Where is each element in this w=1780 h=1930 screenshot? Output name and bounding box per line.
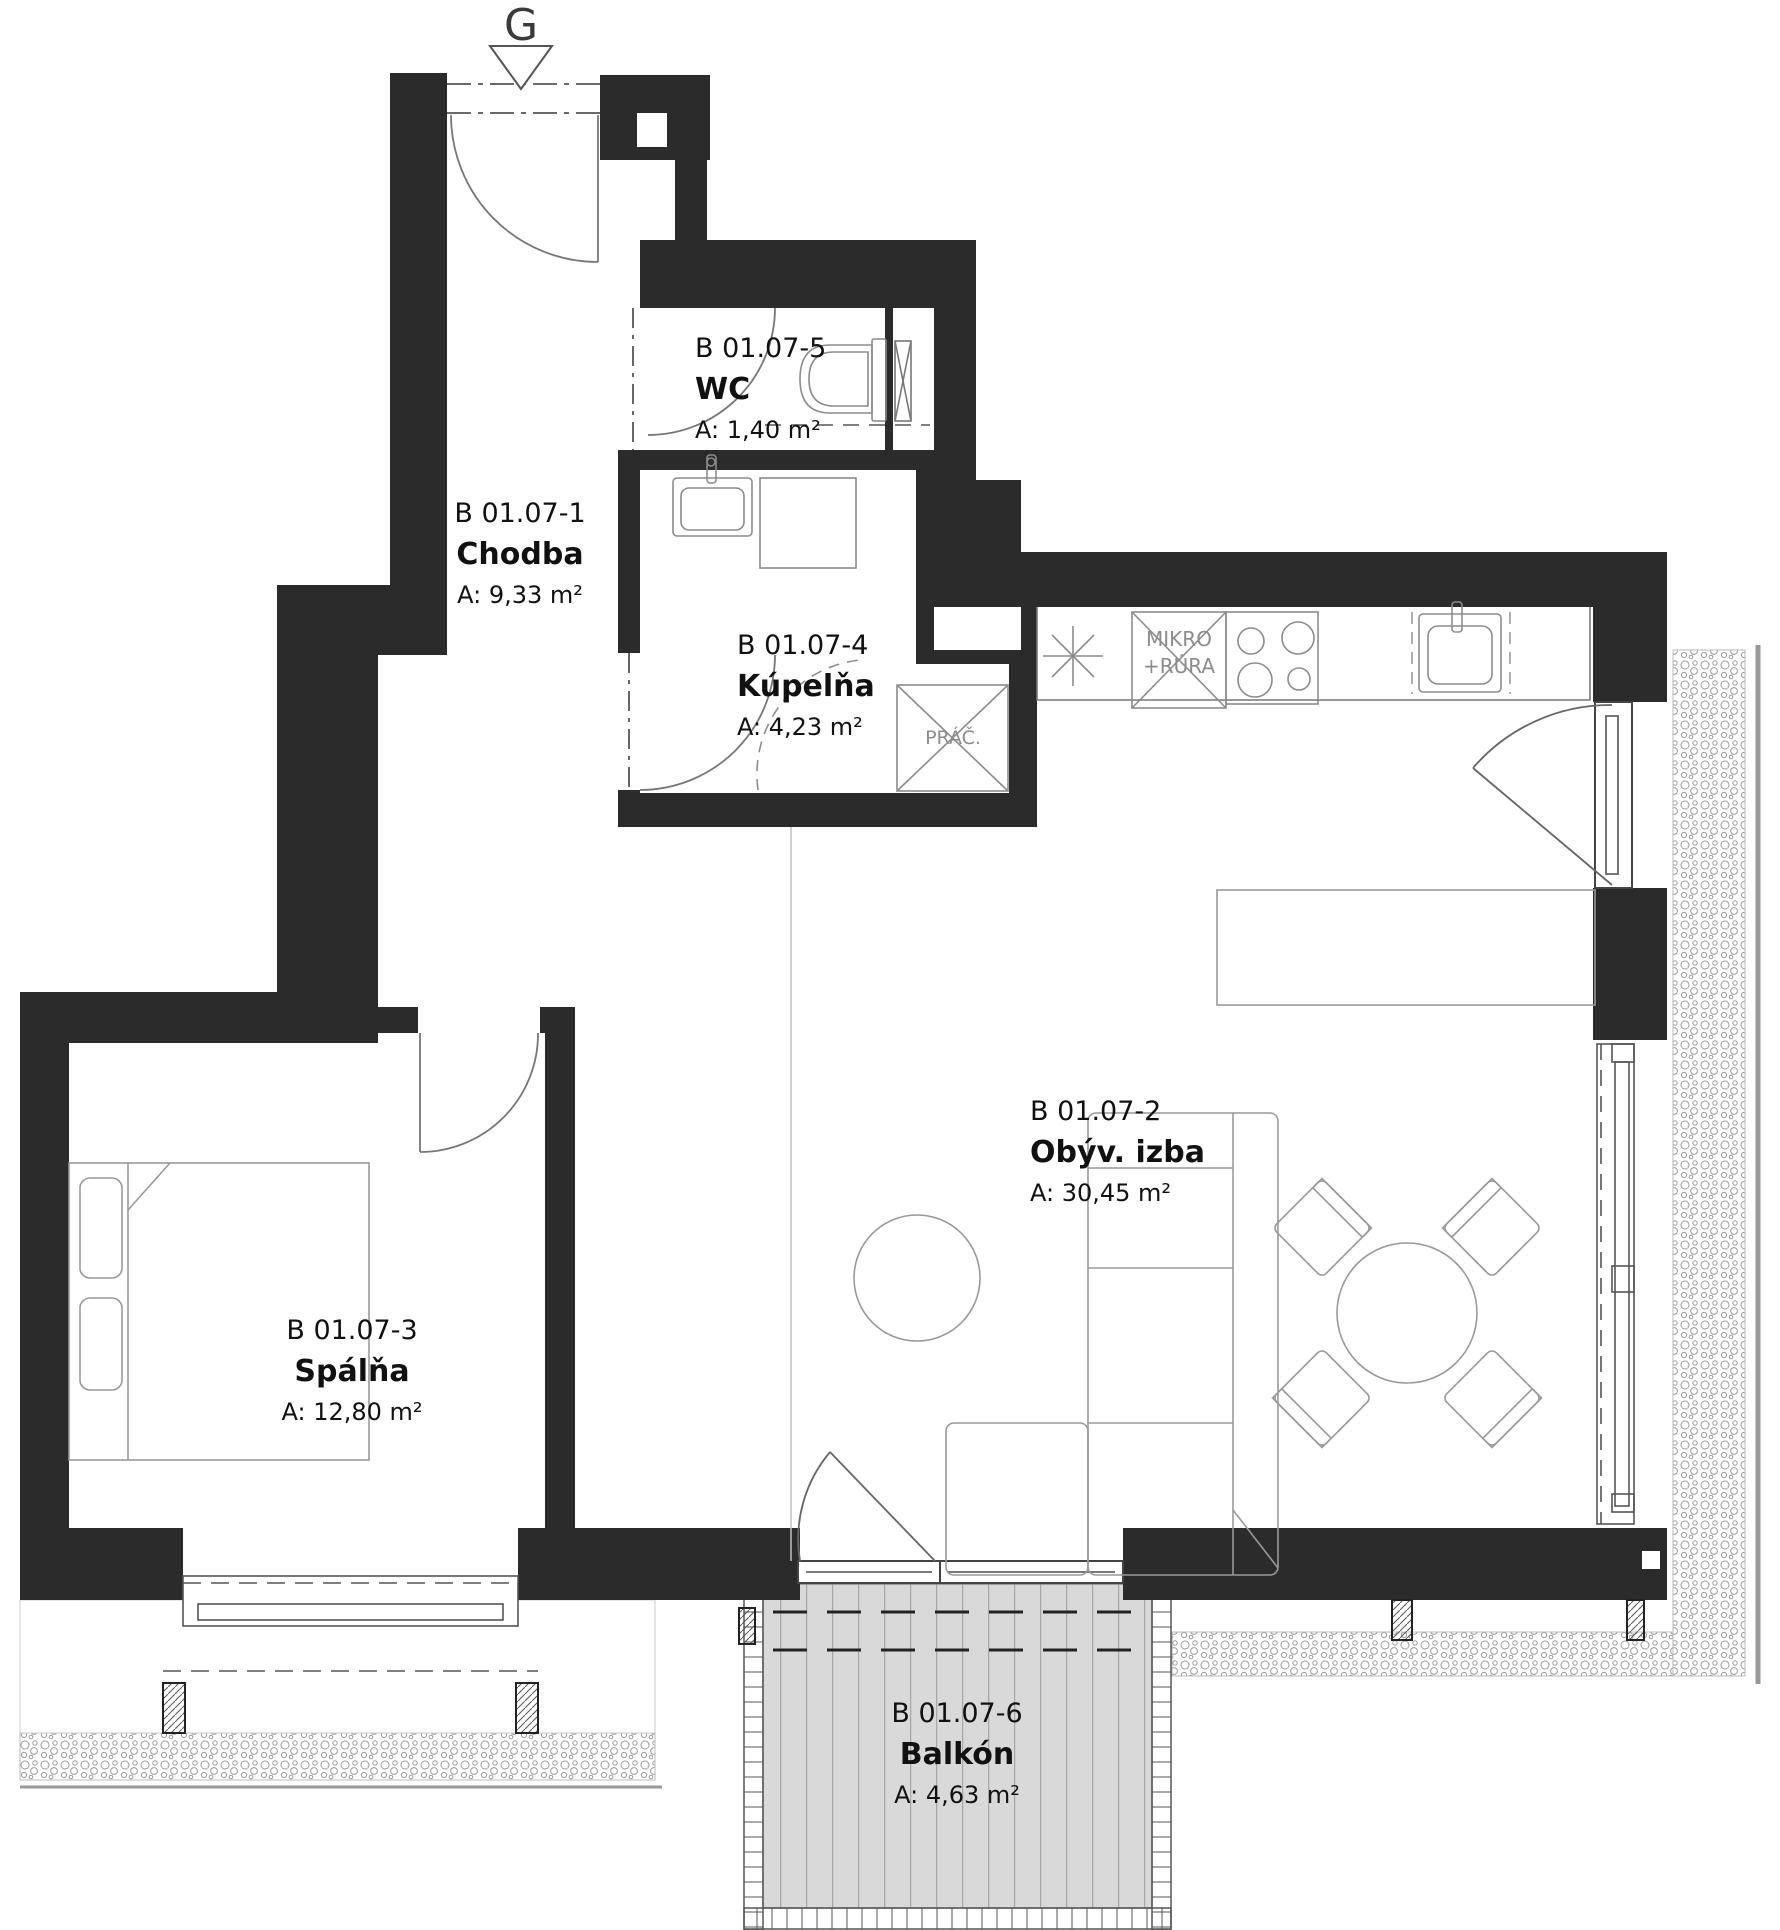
ventilation-shaft [895, 341, 911, 421]
sideboard [1217, 890, 1595, 1005]
room-label-spalna: B 01.07-3 Spálňa A: 12,80 m² [281, 1315, 422, 1426]
room-id: B 01.07-3 [281, 1315, 422, 1346]
room-area: A: 12,80 m² [281, 1399, 422, 1427]
room-name: Spálňa [281, 1355, 422, 1390]
room-area: A: 30,45 m² [1030, 1180, 1205, 1208]
kitchen-star-symbol [1043, 626, 1103, 686]
room-label-balkon: B 01.07-6 Balkón A: 4,63 m² [891, 1698, 1022, 1809]
room-name: Balkón [891, 1738, 1022, 1773]
kitchen-sink [1419, 602, 1501, 692]
room-id: B 01.07-5 [695, 333, 826, 364]
room-id: B 01.07-4 [737, 630, 875, 661]
bathroom-cabinet [760, 478, 856, 568]
entrance-marker-triangle [490, 46, 552, 89]
room-label-kupelna: B 01.07-4 Kúpelňa A: 4,23 m² [737, 630, 875, 741]
kitchen-counter [1037, 602, 1590, 708]
room-area: A: 1,40 m² [695, 417, 826, 445]
room-label-obyv-izba: B 01.07-2 Obýv. izba A: 30,45 m² [1030, 1096, 1205, 1207]
room-name: Obýv. izba [1030, 1136, 1205, 1171]
washer-label: PRÁČ. [925, 726, 981, 752]
room-area: A: 4,63 m² [891, 1782, 1022, 1810]
room-label-wc: B 01.07-5 WC A: 1,40 m² [695, 333, 826, 444]
floor-plan-canvas: G B 01.07-1 Chodba A: 9,33 m² B 01.07-2 … [0, 0, 1780, 1930]
micro-label-line1: MIKRO [1143, 626, 1215, 653]
room-area: A: 4,23 m² [737, 714, 875, 742]
floor-plan-drawing [0, 0, 1780, 1930]
cooktop [1226, 612, 1318, 704]
room-name: Kúpelňa [737, 670, 875, 705]
room-id: B 01.07-1 [454, 498, 585, 529]
room-name: Chodba [454, 538, 585, 573]
dining-set [1273, 1179, 1542, 1448]
room-area: A: 9,33 m² [454, 582, 585, 610]
dining-table [1337, 1243, 1477, 1383]
micro-label-line2: +RÚRA [1143, 653, 1215, 680]
walls [20, 73, 1667, 1600]
entrance-marker-label: G [504, 0, 538, 51]
room-label-chodba: B 01.07-1 Chodba A: 9,33 m² [454, 498, 585, 609]
coffee-table [854, 1215, 980, 1341]
room-id: B 01.07-6 [891, 1698, 1022, 1729]
room-name: WC [695, 373, 826, 408]
microwave-oven-label: MIKRO +RÚRA [1143, 626, 1215, 680]
room-id: B 01.07-2 [1030, 1096, 1205, 1127]
doors [420, 84, 1632, 1583]
washer-label-text: PRÁČ. [925, 726, 981, 752]
